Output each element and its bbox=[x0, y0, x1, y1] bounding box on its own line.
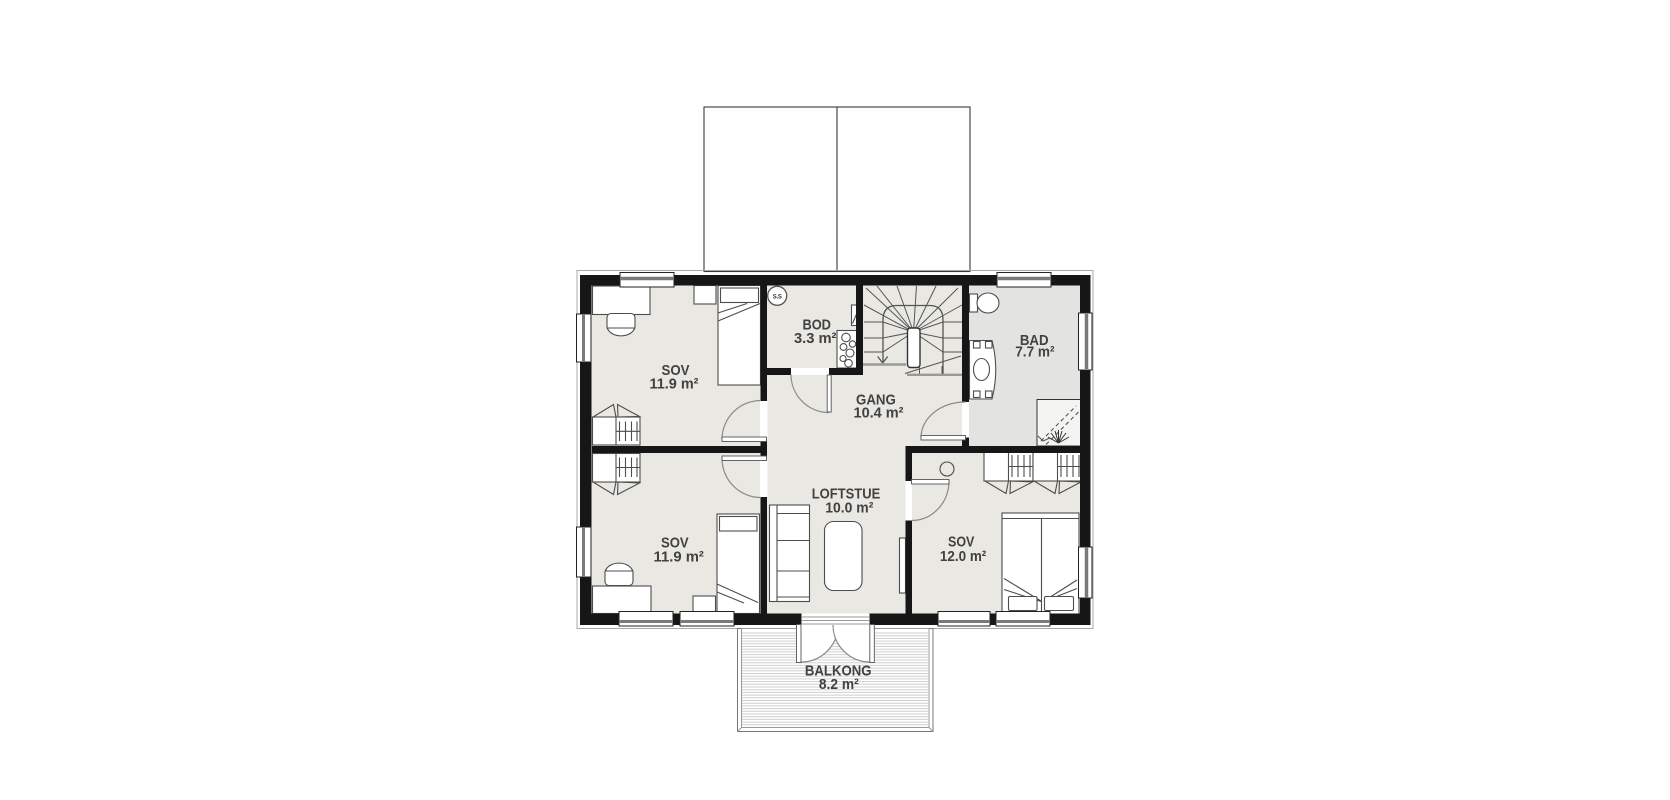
svg-text:3.3 m²: 3.3 m² bbox=[794, 330, 837, 347]
svg-text:S.S: S.S bbox=[773, 295, 782, 301]
svg-text:8.2 m²: 8.2 m² bbox=[819, 676, 859, 693]
svg-text:7.7 m²: 7.7 m² bbox=[1015, 344, 1054, 361]
svg-text:10.4 m²: 10.4 m² bbox=[854, 405, 904, 422]
svg-text:10.0 m²: 10.0 m² bbox=[825, 500, 873, 517]
svg-text:12.0 m²: 12.0 m² bbox=[940, 548, 986, 565]
svg-text:11.9 m²: 11.9 m² bbox=[650, 376, 699, 393]
svg-text:11.9 m²: 11.9 m² bbox=[654, 549, 704, 566]
